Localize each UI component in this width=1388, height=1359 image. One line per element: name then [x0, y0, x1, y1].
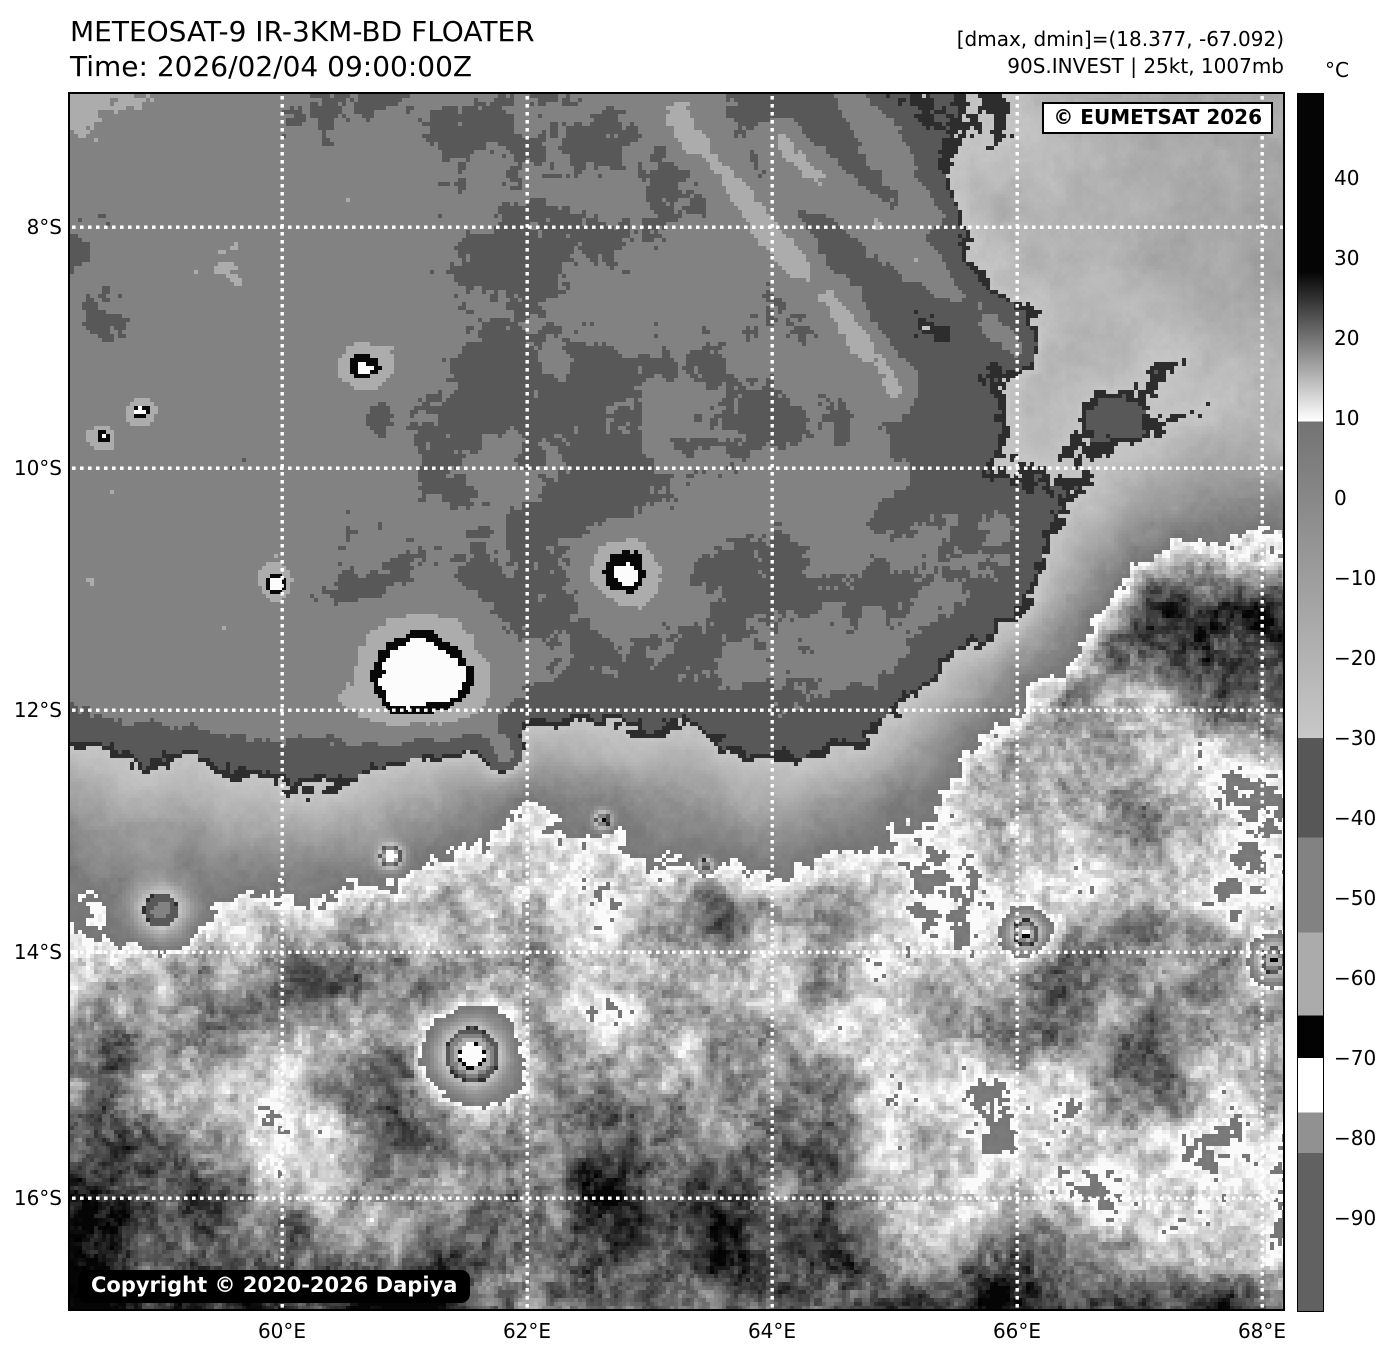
lon-gridline-label: 60°E [237, 1318, 327, 1344]
colorbar-tick-label: 20 [1334, 325, 1388, 351]
lon-gridline-label: 68°E [1217, 1318, 1307, 1344]
colorbar [1297, 93, 1324, 1312]
lon-gridline-label: 62°E [482, 1318, 572, 1344]
lat-gridline-label: 8°S [0, 214, 62, 240]
header-block: METEOSAT-9 IR-3KM-BD FLOATER Time: 2026/… [70, 14, 535, 84]
colorbar-tick-label: −30 [1334, 725, 1388, 751]
temperature-unit-label: °C [1325, 58, 1349, 82]
copyright-badge: Copyright © 2020-2026 Dapiya [78, 1270, 470, 1303]
colorbar-tick-label: −80 [1334, 1125, 1388, 1151]
colorbar-tick-label: −90 [1334, 1205, 1388, 1231]
dmax-dmin-readout: [dmax, dmin]=(18.377, -67.092) [957, 26, 1284, 53]
lon-gridline-label: 64°E [727, 1318, 817, 1344]
colorbar-tick-label: −70 [1334, 1045, 1388, 1071]
colorbar-tick-label: 30 [1334, 245, 1388, 271]
product-title: METEOSAT-9 IR-3KM-BD FLOATER [70, 14, 535, 49]
colorbar-tick-label: −10 [1334, 565, 1388, 591]
lat-gridline-label: 16°S [0, 1185, 62, 1211]
colorbar-tick-label: −20 [1334, 645, 1388, 671]
storm-readout: 90S.INVEST | 25kt, 1007mb [957, 53, 1284, 80]
info-block: [dmax, dmin]=(18.377, -67.092) 90S.INVES… [957, 26, 1284, 80]
colorbar-tick-label: −40 [1334, 805, 1388, 831]
eumetsat-watermark: © EUMETSAT 2026 [1042, 102, 1273, 134]
lat-gridline-label: 10°S [0, 455, 62, 481]
colorbar-tick-label: 40 [1334, 165, 1388, 191]
satellite-image [70, 94, 1283, 1309]
product-time: Time: 2026/02/04 09:00:00Z [70, 49, 535, 84]
colorbar-tick-label: −50 [1334, 885, 1388, 911]
colorbar-tick-label: 0 [1334, 485, 1388, 511]
meteosat-floater-page: { "header": { "title": "METEOSAT-9 IR-3K… [0, 0, 1388, 1359]
map-frame: © EUMETSAT 2026 Copyright © 2020-2026 Da… [68, 92, 1285, 1311]
colorbar-tick-label: −60 [1334, 965, 1388, 991]
lat-gridline-label: 12°S [0, 697, 62, 723]
lon-gridline-label: 66°E [972, 1318, 1062, 1344]
lat-gridline-label: 14°S [0, 939, 62, 965]
colorbar-tick-label: 10 [1334, 405, 1388, 431]
